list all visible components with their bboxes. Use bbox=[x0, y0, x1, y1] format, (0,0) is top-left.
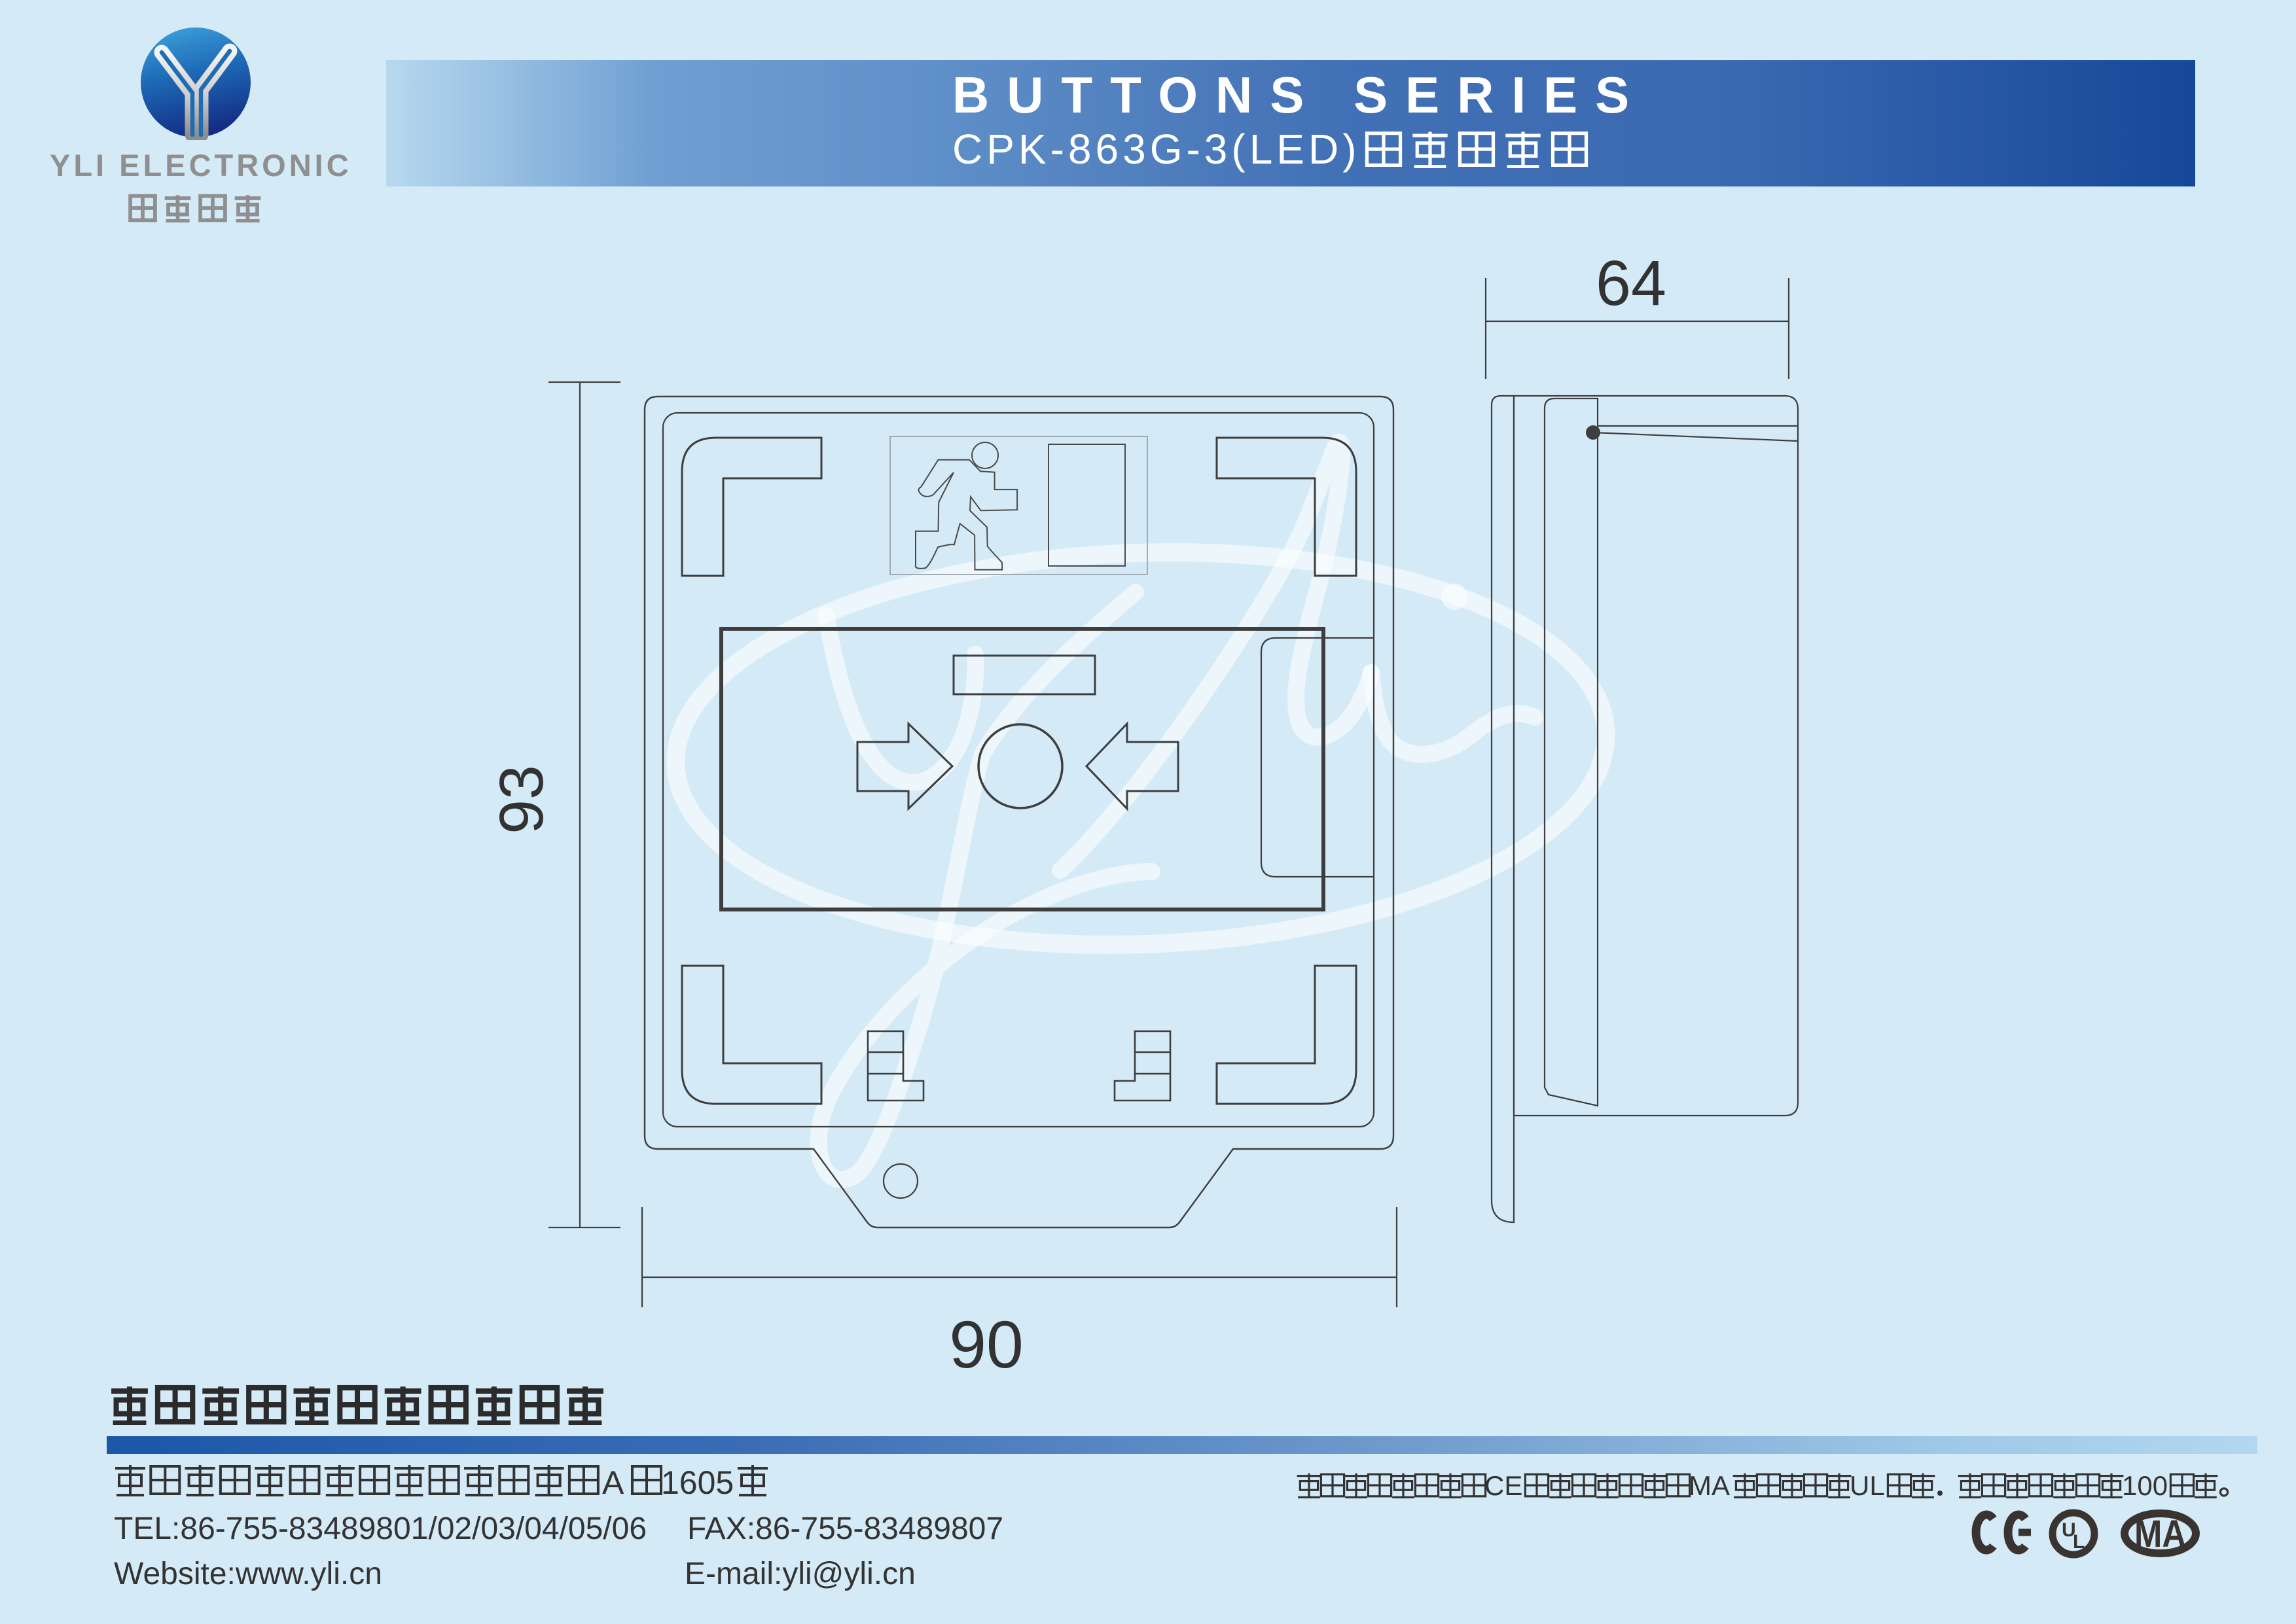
svg-text:®: ® bbox=[2063, 1549, 2068, 1557]
svg-text:L: L bbox=[2073, 1531, 2085, 1553]
svg-text:MA: MA bbox=[2134, 1513, 2186, 1555]
svg-text:A: A bbox=[602, 1464, 624, 1499]
svg-text:64: 64 bbox=[1596, 247, 1666, 319]
svg-text:93: 93 bbox=[487, 765, 556, 834]
svg-text:CE: CE bbox=[1484, 1472, 1522, 1501]
svg-text:MA: MA bbox=[1689, 1472, 1730, 1501]
svg-text:90: 90 bbox=[949, 1307, 1023, 1382]
svg-text:UL: UL bbox=[1850, 1472, 1885, 1501]
svg-text:1605: 1605 bbox=[661, 1464, 734, 1499]
